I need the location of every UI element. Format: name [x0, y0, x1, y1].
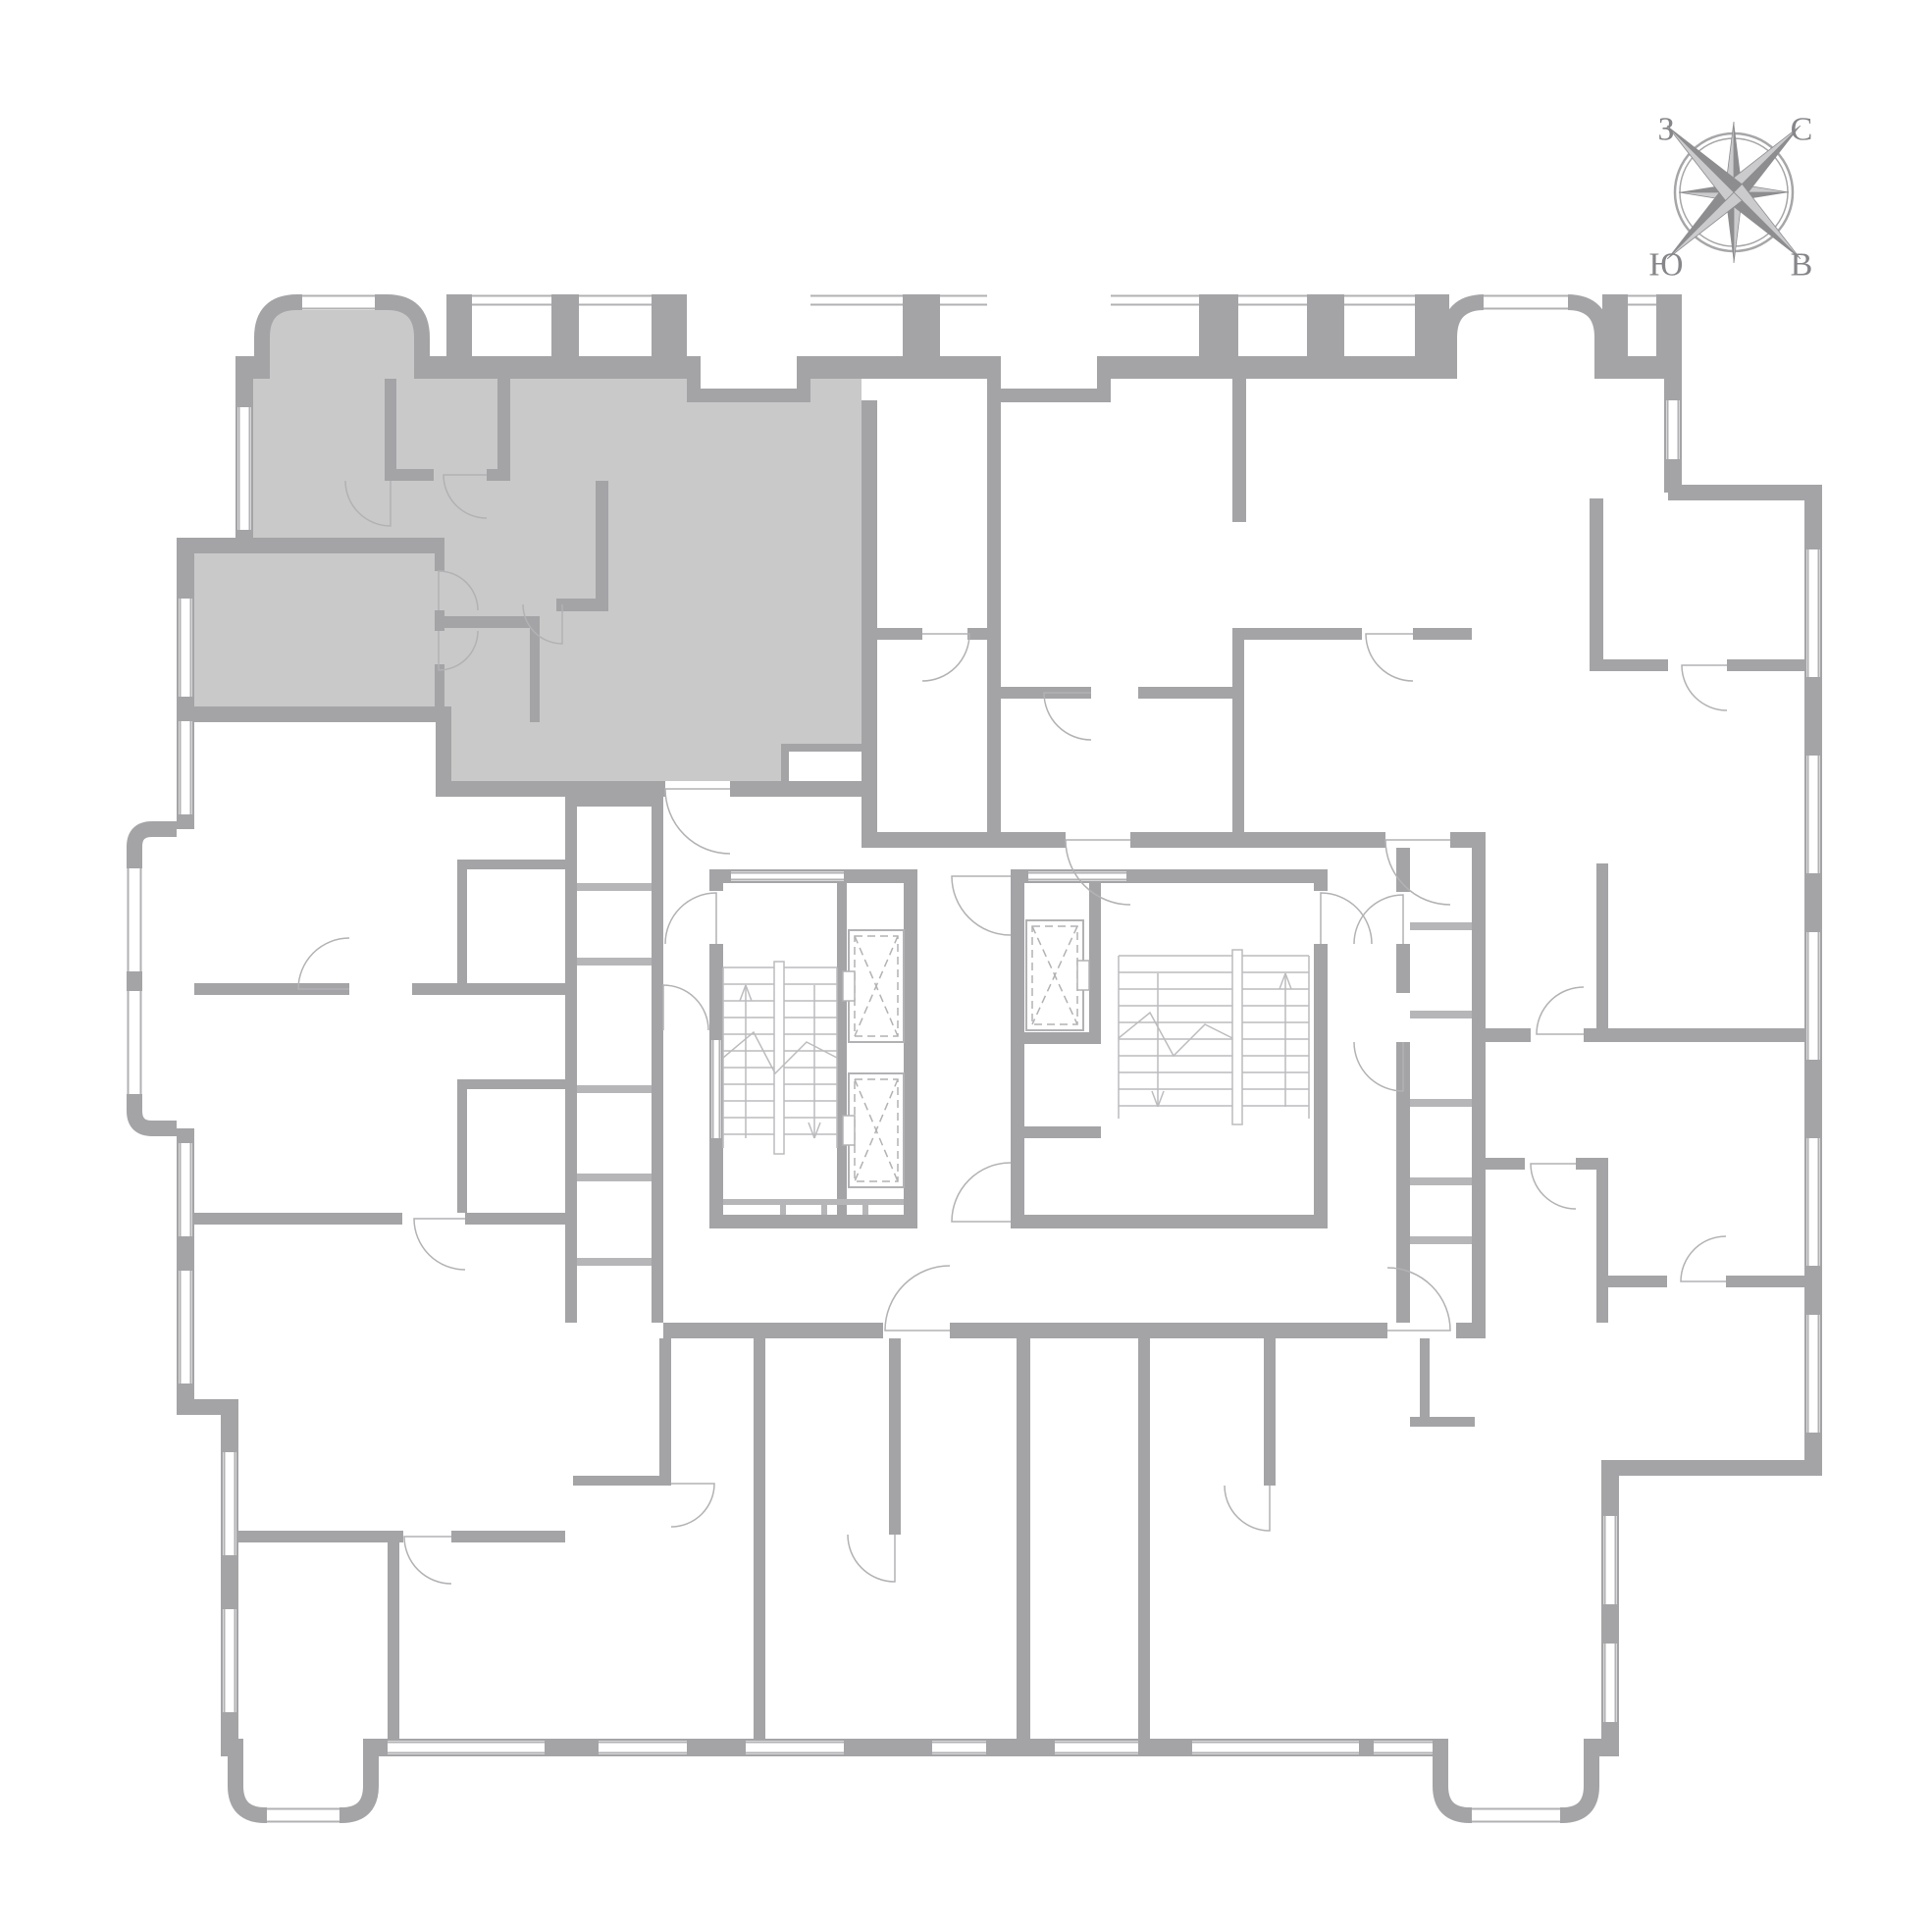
door-arc	[885, 1266, 950, 1331]
door-arc	[848, 1535, 895, 1582]
door-arc	[1044, 693, 1091, 740]
door-arc	[414, 1219, 465, 1270]
elevators	[843, 920, 1089, 1187]
compass-direction-label: С	[1791, 112, 1813, 148]
door-arc	[665, 893, 716, 944]
floor-plan-page: СВЮЗ	[0, 0, 1932, 1932]
floor-plan-svg: СВЮЗ	[0, 0, 1932, 1932]
compass-direction-label: З	[1657, 112, 1674, 148]
door-arc	[1354, 1042, 1403, 1091]
door-arc	[663, 985, 708, 1030]
door-arc	[1354, 895, 1403, 944]
compass-direction-label: Ю	[1649, 247, 1684, 284]
compass-rose: СВЮЗ	[1649, 112, 1813, 284]
door-arc	[952, 876, 1011, 935]
door-arc	[952, 1163, 1011, 1222]
door-arc	[1681, 1236, 1726, 1281]
door-arc	[298, 938, 349, 989]
door-arc	[1321, 893, 1372, 944]
door-arc	[1225, 1486, 1270, 1531]
door-arc	[404, 1537, 451, 1584]
door-arc	[671, 1484, 714, 1527]
door-arc	[922, 634, 969, 681]
door-arc	[665, 789, 730, 854]
door-arc	[1537, 987, 1584, 1034]
door-arc	[1682, 665, 1727, 710]
door-arc	[1531, 1164, 1576, 1209]
door-arc	[1366, 634, 1413, 681]
compass-direction-label: В	[1791, 247, 1813, 284]
